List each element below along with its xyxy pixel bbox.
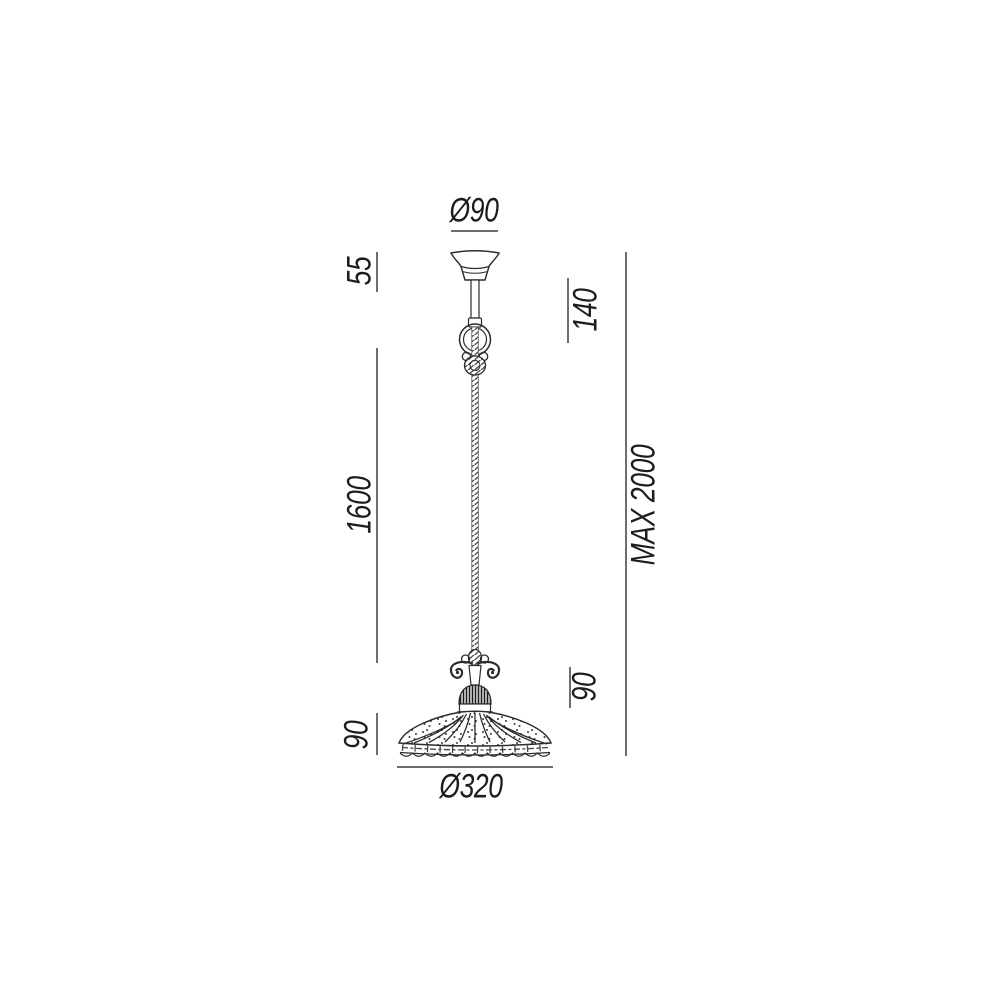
label-canopy-diameter: Ø90 <box>450 192 499 231</box>
label-max-overall-height: MAX 2000 <box>625 445 664 566</box>
technical-drawing-page: Ø90 55 140 1600 MAX 2000 90 90 Ø320 <box>0 0 1000 1000</box>
stem-collar <box>469 318 482 327</box>
label-canopy-height: 55 <box>341 257 380 286</box>
scroll-finial <box>451 650 499 686</box>
label-cable-length: 1600 <box>341 476 380 533</box>
ceiling-canopy <box>451 251 499 280</box>
cable-knot <box>462 352 487 375</box>
label-shade-height: 90 <box>338 721 377 750</box>
twisted-cable <box>472 327 479 657</box>
lamp-holder-cap <box>457 685 493 712</box>
pendant-lamp-drawing <box>0 0 1000 1000</box>
lamp-figure <box>399 251 551 757</box>
label-holder-section-height: 90 <box>566 673 605 702</box>
canopy-stem <box>471 280 479 318</box>
glass-shade <box>399 711 551 756</box>
label-top-section-height: 140 <box>567 288 606 331</box>
shade-rim-band <box>400 748 550 756</box>
label-shade-diameter: Ø320 <box>439 768 502 807</box>
